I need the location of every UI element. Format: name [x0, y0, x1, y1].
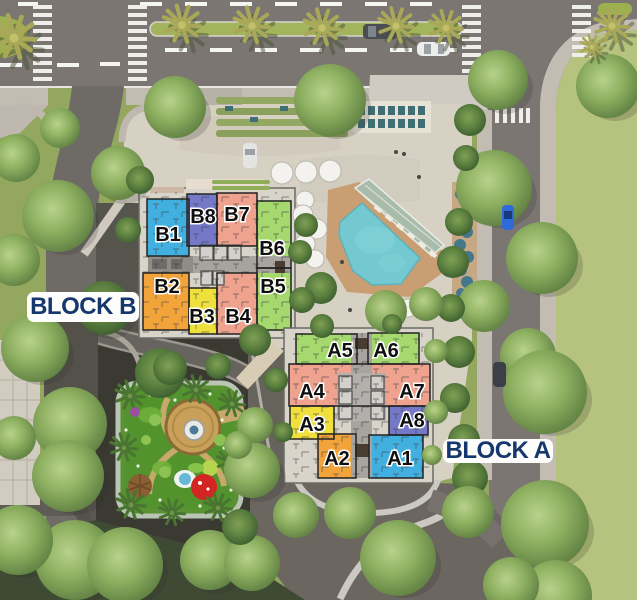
svg-text:B2: B2 [154, 276, 180, 298]
svg-text:A7: A7 [399, 381, 425, 403]
svg-text:B4: B4 [225, 306, 251, 328]
svg-text:B7: B7 [224, 204, 250, 226]
svg-text:B3: B3 [189, 306, 215, 328]
svg-text:A1: A1 [387, 448, 413, 470]
svg-text:B1: B1 [155, 224, 181, 246]
svg-text:BLOCK A: BLOCK A [446, 437, 551, 464]
svg-text:A6: A6 [373, 340, 399, 362]
svg-text:A2: A2 [324, 448, 350, 470]
svg-text:B5: B5 [260, 276, 286, 298]
svg-text:A5: A5 [327, 340, 353, 362]
svg-text:A4: A4 [299, 381, 325, 403]
svg-text:B8: B8 [190, 206, 216, 228]
svg-text:A8: A8 [399, 410, 425, 432]
svg-text:B6: B6 [259, 238, 285, 260]
svg-text:BLOCK B: BLOCK B [30, 293, 136, 320]
svg-text:A3: A3 [299, 414, 325, 436]
